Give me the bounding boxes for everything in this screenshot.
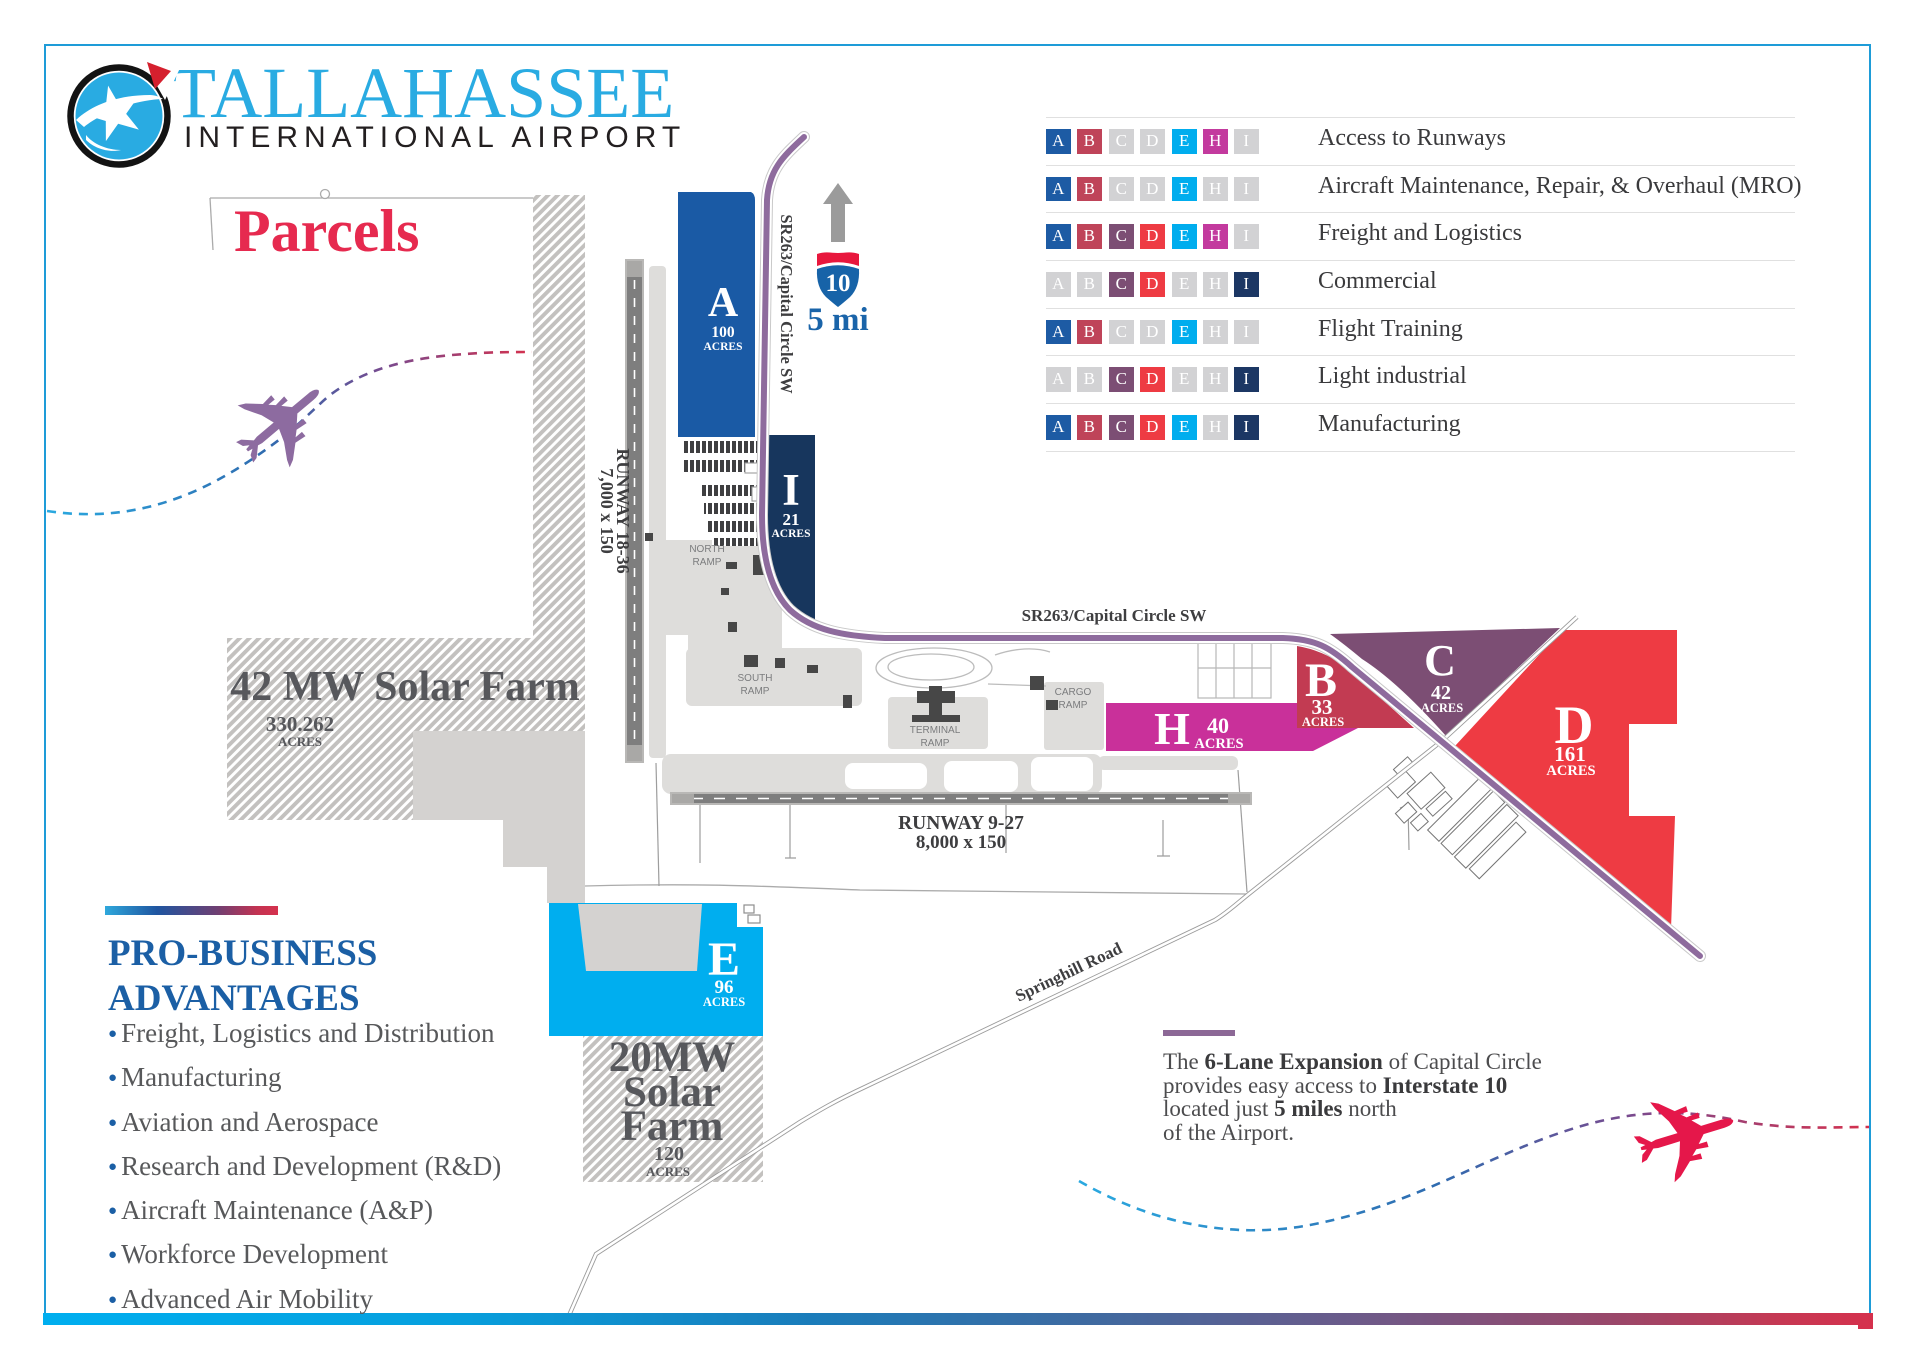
svg-text:RUNWAY 9-27: RUNWAY 9-27 xyxy=(898,813,1024,834)
svg-text:SR263/Capital Circle SW: SR263/Capital Circle SW xyxy=(777,214,796,394)
svg-text:SOUTH: SOUTH xyxy=(738,673,773,684)
svg-text:RAMP: RAMP xyxy=(1059,700,1088,711)
svg-text:42 MW Solar Farm: 42 MW Solar Farm xyxy=(230,664,580,710)
svg-text:H: H xyxy=(1154,703,1190,754)
svg-text:ACRES: ACRES xyxy=(646,1164,690,1179)
svg-text:21: 21 xyxy=(783,510,800,529)
svg-text:ACRES: ACRES xyxy=(1302,715,1344,729)
svg-text:100: 100 xyxy=(711,324,735,341)
svg-text:ACRES: ACRES xyxy=(1421,701,1463,715)
svg-text:NORTH: NORTH xyxy=(689,544,724,555)
svg-text:RAMP: RAMP xyxy=(693,557,722,568)
svg-text:ACRES: ACRES xyxy=(703,995,745,1009)
svg-text:40: 40 xyxy=(1207,713,1229,738)
svg-text:7,000 x 150: 7,000 x 150 xyxy=(597,468,617,554)
svg-text:120: 120 xyxy=(654,1143,684,1165)
svg-text:A: A xyxy=(708,280,739,326)
svg-text:ACRES: ACRES xyxy=(772,528,811,540)
svg-text:330.262: 330.262 xyxy=(266,712,334,736)
svg-text:I: I xyxy=(782,465,800,515)
svg-text:CARGO: CARGO xyxy=(1055,687,1092,698)
svg-text:ACRES: ACRES xyxy=(704,341,743,353)
svg-text:10: 10 xyxy=(826,270,851,297)
svg-text:RAMP: RAMP xyxy=(921,738,950,749)
svg-text:SR263/Capital Circle SW: SR263/Capital Circle SW xyxy=(1022,606,1207,625)
svg-text:TERMINAL: TERMINAL xyxy=(910,725,961,736)
svg-text:C: C xyxy=(1424,636,1456,685)
svg-text:8,000 x 150: 8,000 x 150 xyxy=(916,832,1006,853)
svg-text:ACRES: ACRES xyxy=(1546,763,1595,779)
svg-text:ACRES: ACRES xyxy=(1194,736,1243,752)
svg-text:ACRES: ACRES xyxy=(278,734,322,749)
svg-text:RAMP: RAMP xyxy=(741,686,770,697)
svg-text:5 mi: 5 mi xyxy=(807,302,868,338)
